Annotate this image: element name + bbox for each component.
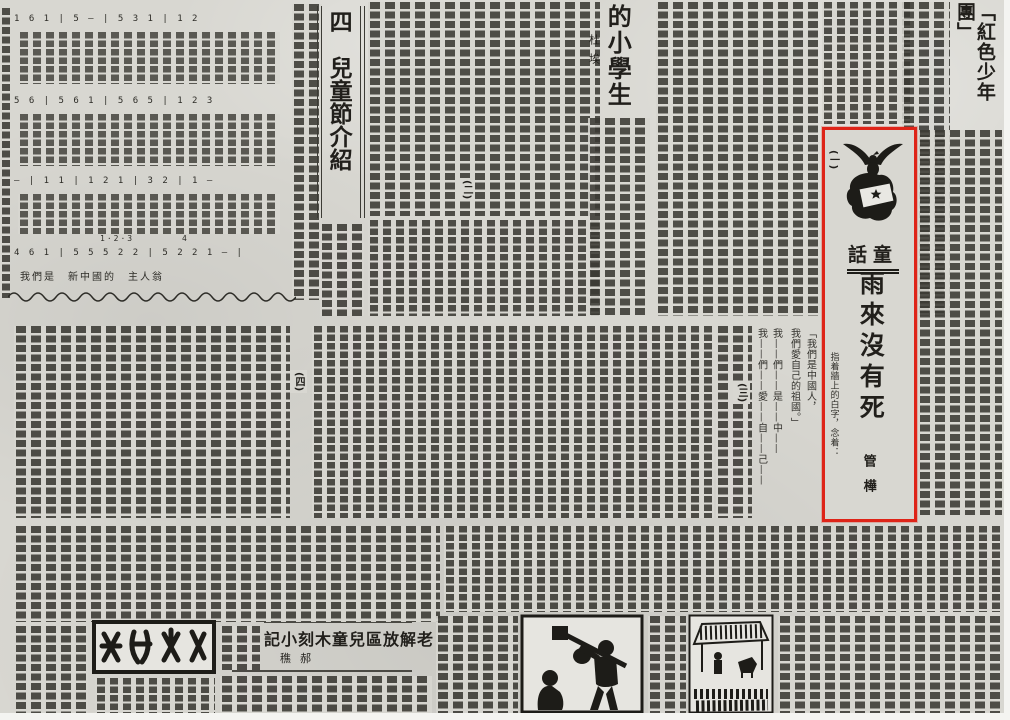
story-line-1: 「我們是中國人， <box>804 328 815 488</box>
text-column-texture-i <box>918 130 1002 515</box>
text-column-texture-s <box>778 616 1002 714</box>
story-title-yulai: 雨來沒有死 <box>857 270 883 448</box>
boy-rifle-woodcut <box>520 614 644 714</box>
section-marker-2: (二) <box>458 178 475 201</box>
text-column-texture-n <box>220 676 432 714</box>
text-column-texture-e <box>822 2 914 124</box>
story-line-dash-2: 我——們——愛——自——己—— <box>755 328 766 506</box>
notation-line-1: 1 6 1 | 5 — | 5 3 1 | 1 2 <box>14 14 286 24</box>
newspaper-scan-page: 1 6 1 | 5 — | 5 3 1 | 1 2 5 6 | 5 6 1 | … <box>0 0 1010 720</box>
text-column-texture-c2 <box>656 2 818 316</box>
headline-rule-top <box>264 622 412 623</box>
text-column-texture-r <box>648 616 686 714</box>
column-tag-tonghua: 童話 <box>847 240 899 274</box>
headline-muke-xiaoji: 老解放區兒童木刻小記 <box>262 626 434 650</box>
notation-line-4: 4 6 1 | 5 5 5 2 2 | 5 2 2 1 — | <box>14 248 286 258</box>
story-line-dash-1: 我——們——是——中—— <box>770 328 781 488</box>
text-column-texture-f <box>14 326 290 518</box>
story-line-0: 指着牆上的白字，念着： <box>828 352 837 468</box>
text-column-texture-f2 <box>716 326 752 518</box>
author-guan-hua: 管樺 <box>861 454 875 512</box>
calligraphy-banner-woodcut <box>92 620 216 674</box>
section-marker-3: (三) <box>733 381 750 404</box>
text-column-texture-b3 <box>320 224 364 316</box>
lyric-texture-1 <box>18 32 280 84</box>
section-marker-4: (四) <box>290 370 307 393</box>
lyric-texture-2 <box>18 114 280 166</box>
text-column-texture-l <box>95 678 215 714</box>
text-column-texture-b2 <box>368 220 600 316</box>
hut-crowd-woodcut <box>688 614 774 714</box>
headline-rule-bottom <box>232 670 412 672</box>
text-column-texture-o <box>436 616 518 714</box>
lyric-texture-3 <box>18 194 280 234</box>
text-column-texture-m <box>220 626 260 670</box>
dove-emblem-illustration <box>837 138 907 238</box>
text-column-texture-b <box>368 2 600 216</box>
song-lyric-line: 我們是 新中國的 主人翁 <box>20 268 282 283</box>
notation-line-3: — | 1 1 | 1 2 1 | 3 2 | 1 — <box>14 176 286 186</box>
text-column-texture-q <box>444 526 1002 612</box>
page-margin-right <box>1004 0 1010 720</box>
author-du-ai: 杜埃 <box>588 34 600 96</box>
headline-hongse-shaoniantuan: 「紅色少年團」 <box>954 2 994 126</box>
section-marker-1: (一) <box>827 150 838 169</box>
text-column-texture-g <box>312 326 714 518</box>
headline-ertongjie-jieshao: 四 兒童節介紹 <box>326 10 350 222</box>
author-hao: 郝穛 <box>272 650 320 666</box>
story-line-2: 我們愛自己的祖國。」 <box>788 328 799 516</box>
text-column-texture-k <box>14 626 88 714</box>
measure-label-b: 4 <box>182 234 189 243</box>
text-column-texture-c1 <box>588 118 650 316</box>
red-highlight-box: (一) 童話 雨來沒有死 指着牆上的白字，念着： 管樺 <box>822 127 917 522</box>
page-margin-bottom <box>0 713 1010 720</box>
measure-label-a: 1·2·3 <box>100 234 134 243</box>
notation-line-2: 5 6 | 5 6 1 | 5 6 5 | 1 2 3 <box>14 96 286 106</box>
headline-de-xiaoxuesheng: 的小學生 <box>604 4 629 116</box>
headline-rule-left <box>317 6 322 218</box>
wavy-rule <box>8 290 296 302</box>
text-column-texture-j <box>14 526 440 622</box>
headline-rule-right <box>360 6 365 218</box>
cutoff-edge-column <box>0 8 10 298</box>
